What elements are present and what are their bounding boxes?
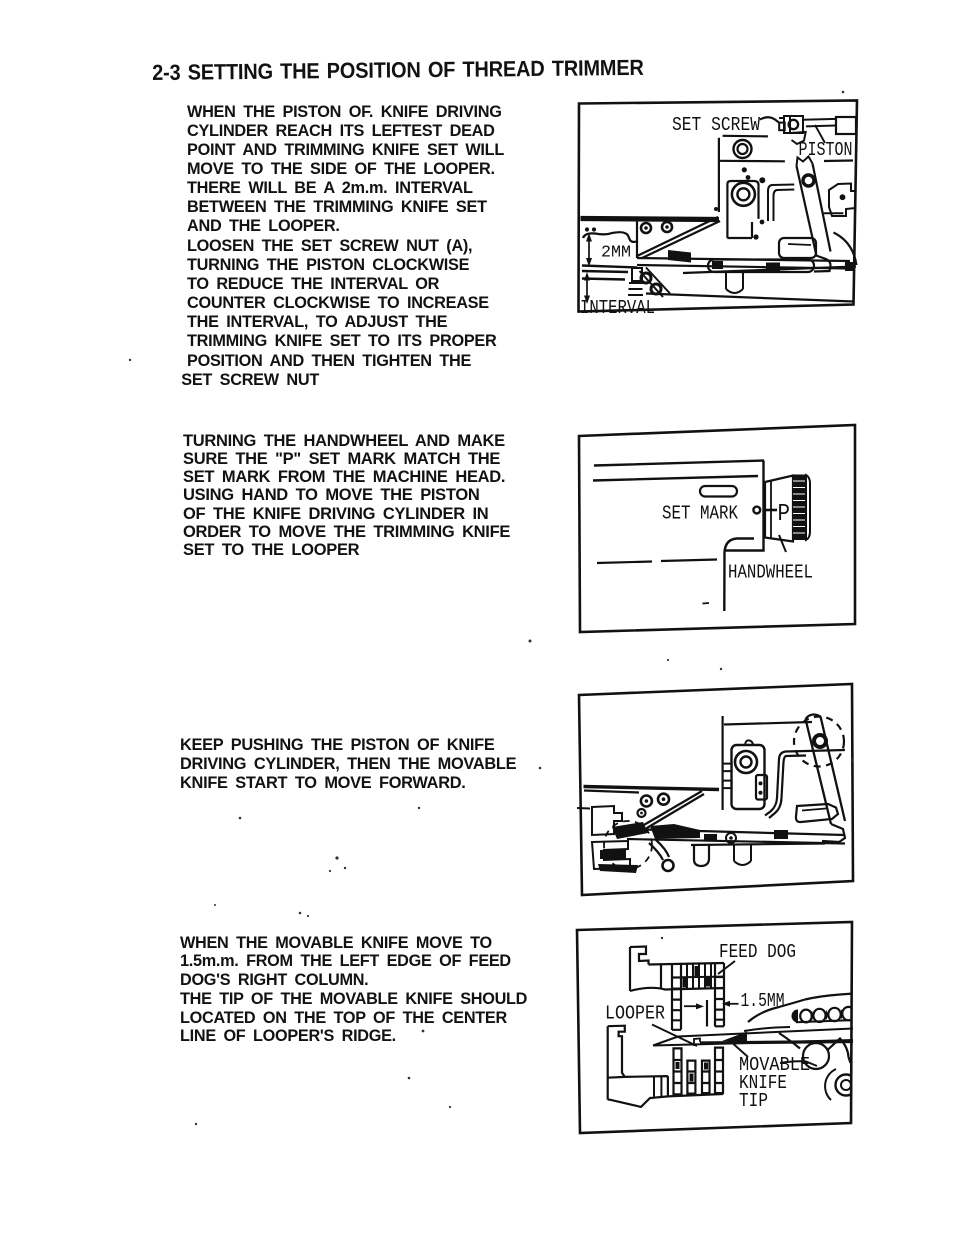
svg-text:TIP: TIP xyxy=(739,1090,768,1112)
svg-text:1.5MM: 1.5MM xyxy=(741,990,785,1012)
svg-text:INTERVAL: INTERVAL xyxy=(580,297,655,319)
svg-text:FEED DOG: FEED DOG xyxy=(719,941,796,963)
svg-text:LOOPER: LOOPER xyxy=(605,1003,665,1025)
svg-text:2MM: 2MM xyxy=(601,244,631,263)
svg-text:SET MARK: SET MARK xyxy=(662,503,738,525)
svg-text:HANDWHEEL: HANDWHEEL xyxy=(728,562,813,584)
svg-text:P: P xyxy=(778,501,791,528)
svg-text:SET SCREW: SET SCREW xyxy=(672,114,761,136)
